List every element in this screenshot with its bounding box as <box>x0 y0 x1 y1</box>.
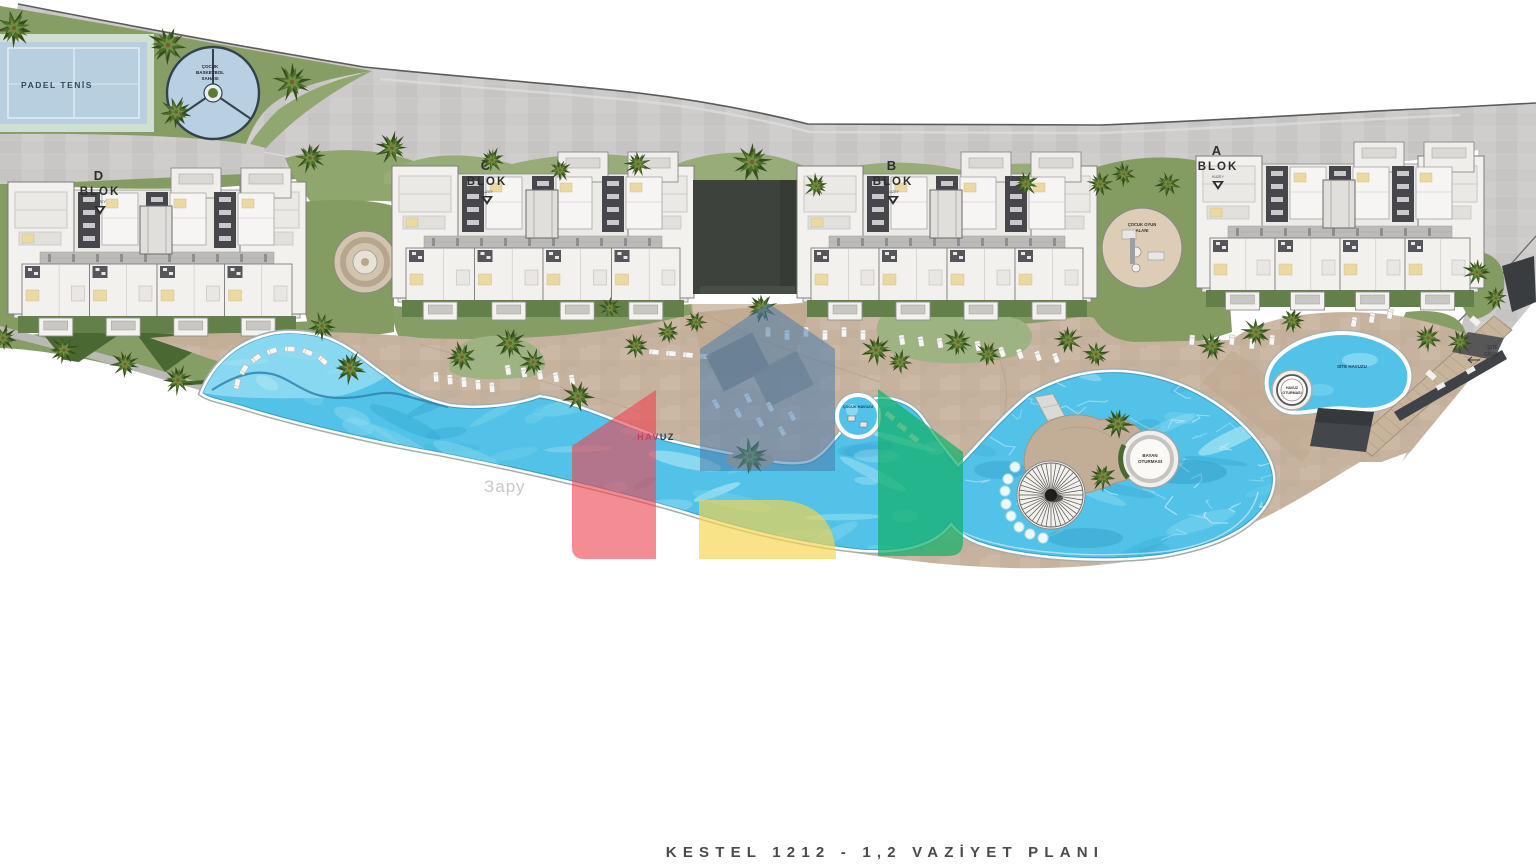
svg-text:BLOK: BLOK <box>467 176 508 188</box>
svg-text:D: D <box>94 168 106 183</box>
svg-text:KUZEY: KUZEY <box>887 190 899 194</box>
svg-text:ÇOCUK: ÇOCUK <box>202 64 219 69</box>
svg-text:KESTEL 1212 - 1,2 VAZİYET PLAN: KESTEL 1212 - 1,2 VAZİYET PLANI <box>666 844 1104 861</box>
svg-text:OTURMASI: OTURMASI <box>1282 391 1301 395</box>
svg-text:KUZEY: KUZEY <box>1212 175 1224 179</box>
svg-text:SİTE: SİTE <box>1487 344 1499 351</box>
svg-text:BLOK: BLOK <box>1198 161 1239 173</box>
svg-text:HAVUZ: HAVUZ <box>1286 386 1299 390</box>
svg-text:ÇOCUK HAVUZU: ÇOCUK HAVUZU <box>843 405 874 409</box>
svg-text:A: A <box>1212 143 1224 158</box>
svg-text:BLOK: BLOK <box>80 186 121 198</box>
svg-text:B: B <box>887 158 899 173</box>
svg-text:SİTE HAVUZU: SİTE HAVUZU <box>1337 363 1367 369</box>
svg-text:PADEL TENİS: PADEL TENİS <box>21 80 93 90</box>
svg-text:KUZEY: KUZEY <box>481 190 493 194</box>
svg-text:GİRİŞİ: GİRİŞİ <box>1484 351 1499 358</box>
svg-text:BAYAN: BAYAN <box>1142 453 1157 458</box>
svg-text:SAHASI: SAHASI <box>201 76 218 81</box>
svg-text:ALANI: ALANI <box>1136 228 1149 233</box>
svg-text:ÇOCUK OYUN: ÇOCUK OYUN <box>1128 222 1157 227</box>
svg-text:BLOK: BLOK <box>873 176 914 188</box>
svg-text:BASKETBOL: BASKETBOL <box>196 70 224 75</box>
svg-text:Зару: Зару <box>484 477 526 496</box>
svg-text:KUZEY: KUZEY <box>94 200 106 204</box>
svg-text:OTURMASI: OTURMASI <box>1138 459 1162 464</box>
